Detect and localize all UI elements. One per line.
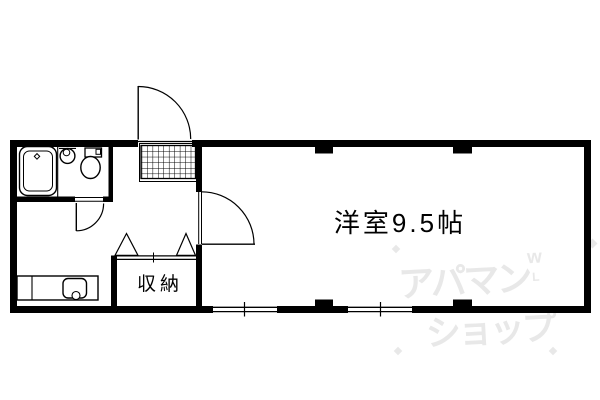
wall-closet-left <box>111 256 117 307</box>
floor-plan: アパマン w L ショップ <box>0 0 600 400</box>
entrance-door-arc <box>138 87 191 140</box>
pillar-bottom-1 <box>315 300 333 307</box>
closet <box>115 234 196 263</box>
interior-door-arc <box>202 192 255 244</box>
watermark-mark-bottom: L <box>532 270 540 284</box>
watermark-line2: ショップ <box>425 308 558 354</box>
floor-plan-drawing: アパマン w L ショップ <box>0 0 600 400</box>
kitchen-counter <box>17 276 98 300</box>
pillar-top-1 <box>315 147 333 154</box>
wall-bathroom-bottom-right <box>103 197 113 203</box>
bifold-door-icon <box>115 234 138 256</box>
kitchen-sink-drain-icon <box>72 292 80 300</box>
wall-bottom-c <box>412 306 591 313</box>
watermark-logo: アパマン w L ショップ <box>392 239 598 356</box>
bathroom-unit <box>20 147 104 232</box>
main-room-label: 洋室9.5帖 <box>334 208 466 238</box>
watermark-speck <box>549 347 557 355</box>
genkan-entrance <box>138 86 197 182</box>
wall-partition-lower <box>196 245 202 314</box>
wall-right <box>584 140 591 313</box>
genkan-hatch <box>141 146 196 179</box>
toilet-tank-button <box>96 149 101 154</box>
watermark-mark-top: w <box>526 246 543 268</box>
closet-label: 収納 <box>137 273 183 295</box>
interior-door <box>199 192 255 244</box>
wall-bottom-b <box>277 306 348 313</box>
watermark-speck <box>394 347 402 355</box>
wall-left <box>10 140 17 313</box>
wall-top-right <box>192 140 591 147</box>
wash-basin-faucet-icon <box>63 149 70 156</box>
pillar-bottom-2 <box>453 300 472 307</box>
watermark-speck <box>392 245 400 253</box>
pillar-top-2 <box>453 147 472 154</box>
bifold-door-icon <box>177 234 196 256</box>
toilet-bowl <box>81 157 100 179</box>
wall-bathroom-bottom-left <box>17 197 75 203</box>
bathtub <box>20 147 57 196</box>
watermark-line1: アパマン <box>397 257 531 305</box>
bathroom-door-arc <box>76 204 103 231</box>
wall-bathroom-right <box>109 141 114 202</box>
wall-bottom-a <box>10 306 213 313</box>
